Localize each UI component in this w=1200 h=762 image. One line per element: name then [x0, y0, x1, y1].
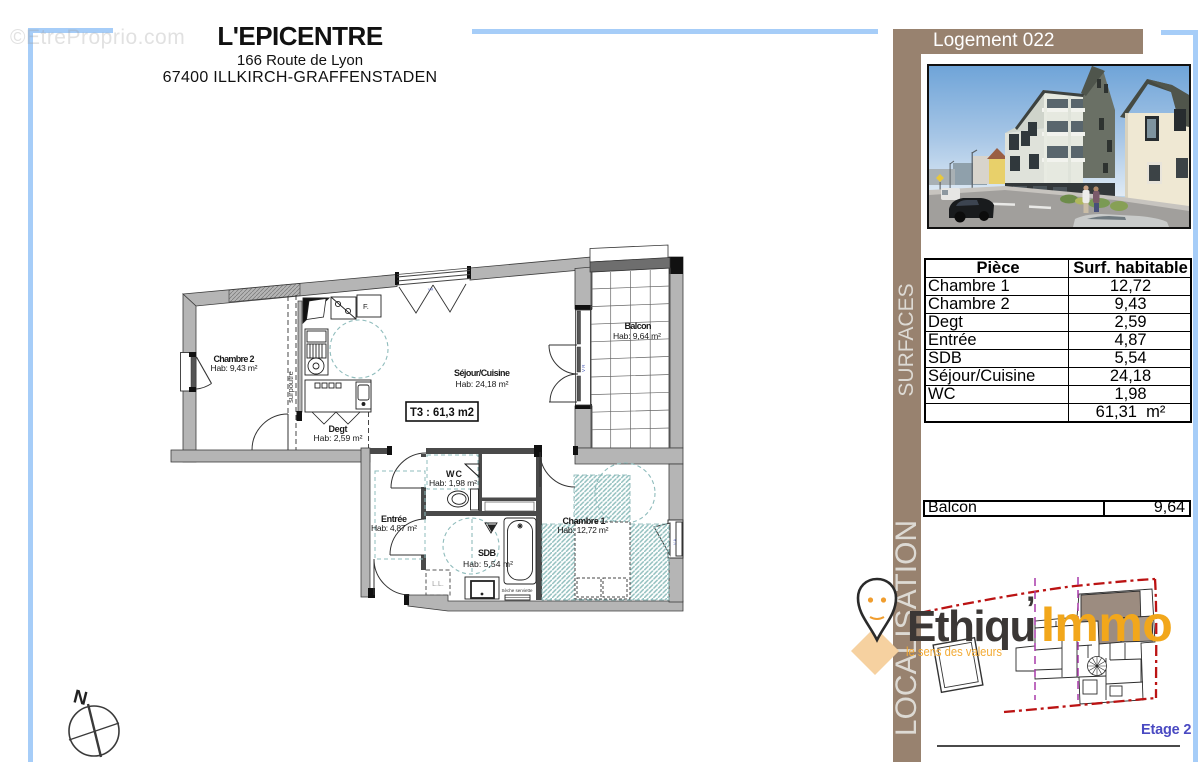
- svg-text:Hab: 9,64 m²: Hab: 9,64 m²: [613, 331, 661, 341]
- svg-text:SDB: SDB: [478, 548, 497, 558]
- svg-text:Hab: 12,72 m²: Hab: 12,72 m²: [558, 525, 609, 535]
- svg-text:Hab: 24,18 m²: Hab: 24,18 m²: [456, 379, 509, 389]
- svg-text:Hab: 4,87 m²: Hab: 4,87 m²: [371, 523, 417, 533]
- svg-text:Sèche serviette: Sèche serviette: [501, 588, 533, 593]
- svg-text:Hab: 5,54 m²: Hab: 5,54 m²: [463, 559, 513, 569]
- svg-text:’: ’: [1026, 590, 1035, 628]
- svg-text:Hab: 1,98 m²: Hab: 1,98 m²: [429, 478, 477, 488]
- svg-text:L.L.: L.L.: [432, 581, 444, 588]
- svg-text:V A: V A: [672, 538, 677, 545]
- svg-text:Balcon: Balcon: [625, 321, 652, 331]
- svg-text:surpoutre: surpoutre: [286, 371, 295, 403]
- svg-text:F.: F.: [363, 302, 369, 311]
- svg-text:V R: V R: [581, 364, 586, 372]
- svg-text:T3 : 61,3 m2: T3 : 61,3 m2: [410, 407, 474, 419]
- svg-text:le sens des valeurs: le sens des valeurs: [906, 644, 1002, 659]
- svg-text:Séjour/Cuisine: Séjour/Cuisine: [454, 368, 510, 378]
- svg-text:Immo: Immo: [1041, 596, 1172, 652]
- svg-text:Hab: 9,43 m²: Hab: 9,43 m²: [211, 363, 258, 373]
- svg-text:Hab: 2,59 m²: Hab: 2,59 m²: [314, 433, 363, 443]
- svg-text:VR: VR: [428, 287, 434, 292]
